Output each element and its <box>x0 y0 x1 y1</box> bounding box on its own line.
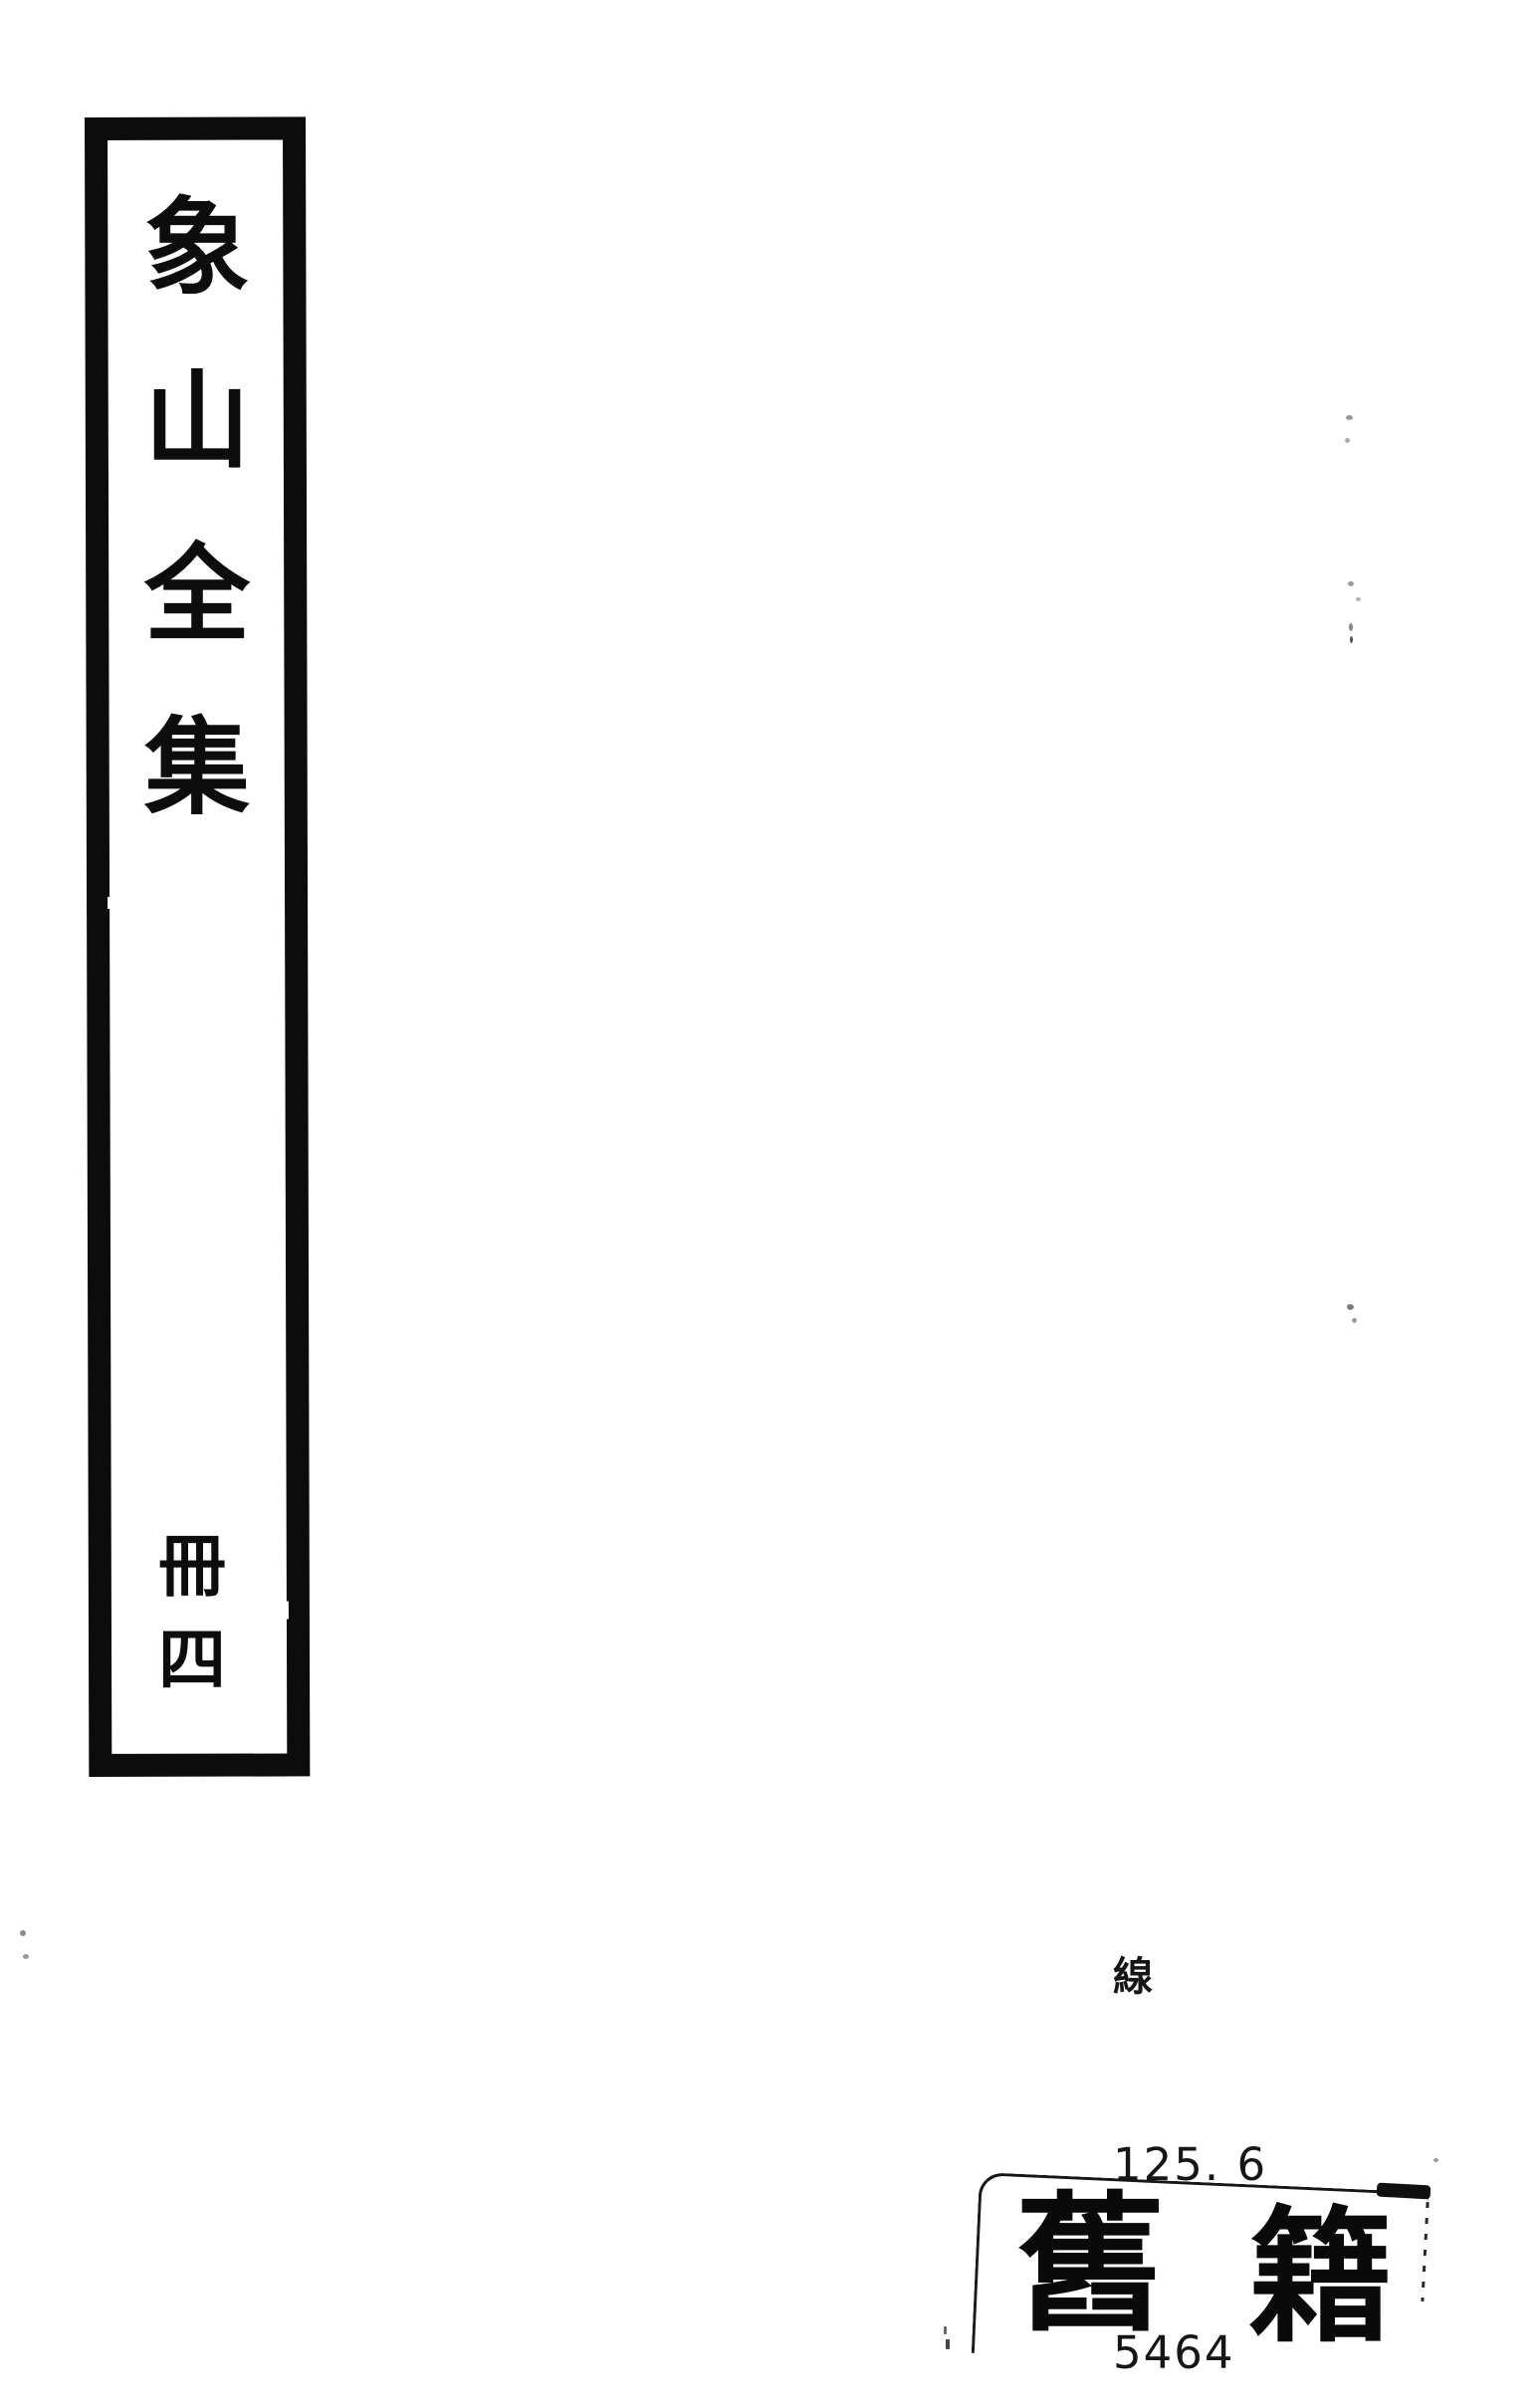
scan-speckle <box>1346 415 1353 420</box>
scan-speckle <box>20 1930 26 1936</box>
spine-title: 象 山 全 集 <box>139 197 255 822</box>
scan-speckle <box>23 1954 29 1959</box>
scan-speckle <box>1356 597 1361 601</box>
volume-char: 冊 <box>158 1533 226 1601</box>
scan-speckle <box>1350 636 1353 643</box>
scan-speckle <box>946 2339 950 2349</box>
spine-title-char: 集 <box>144 717 250 822</box>
spine-title-char: 山 <box>144 370 250 476</box>
scan-speckle <box>1433 2158 1438 2162</box>
scan-speckle <box>1348 581 1354 586</box>
spine-title-char: 象 <box>144 197 250 303</box>
scan-speckle <box>1345 438 1350 443</box>
stamp-char: 舊 <box>1015 2192 1165 2341</box>
scanned-book-cover: 象 山 全 集 冊 四 線 125. 6 5464 25 v. 4 舊 籍 <box>0 0 1540 2408</box>
stamp-char: 籍 <box>1248 2206 1394 2351</box>
border-notch <box>275 1601 289 1619</box>
scan-speckle <box>1349 623 1353 631</box>
volume-char: 四 <box>158 1627 226 1694</box>
spine-title-char: 全 <box>144 544 250 649</box>
volume-number: 冊 四 <box>149 1533 235 1694</box>
scan-speckle <box>944 2326 947 2334</box>
scan-speckle <box>1352 1318 1357 1323</box>
call-number-line: 線 <box>1113 1945 1267 2008</box>
scan-speckle <box>1347 1304 1354 1310</box>
stamp-ink-blotch <box>1377 2183 1431 2200</box>
border-notch <box>108 897 114 909</box>
